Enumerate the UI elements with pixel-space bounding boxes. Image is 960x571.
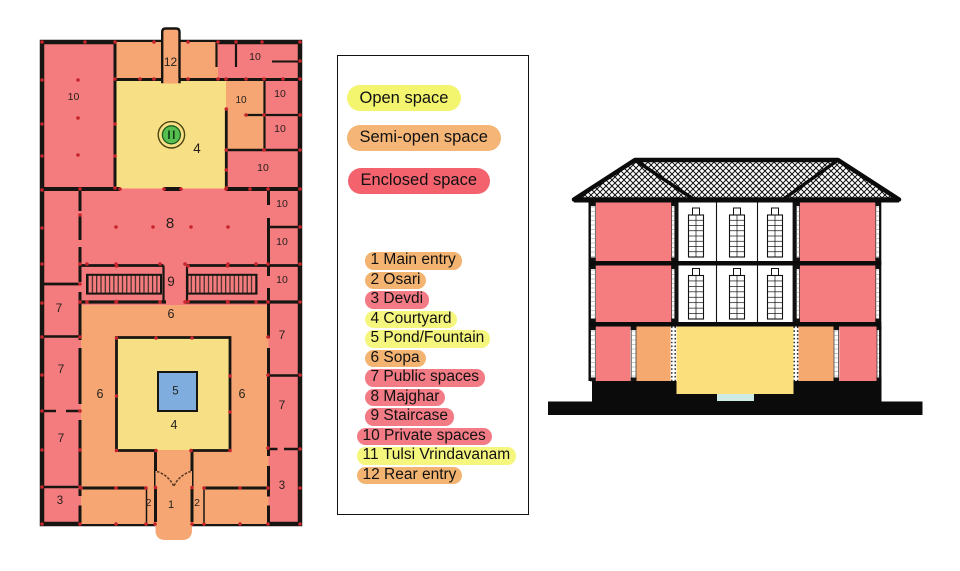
svg-text:5: 5 (172, 386, 178, 398)
svg-text:1: 1 (168, 499, 174, 511)
svg-text:7: 7 (279, 398, 286, 412)
svg-text:3: 3 (279, 480, 285, 492)
svg-text:10: 10 (249, 51, 261, 63)
svg-text:10: 10 (276, 274, 288, 286)
svg-text:10: 10 (274, 123, 286, 135)
svg-text:6: 6 (239, 387, 246, 401)
svg-text:8: 8 (166, 215, 174, 232)
svg-text:4: 4 (193, 141, 201, 156)
svg-text:10: 10 (257, 162, 269, 174)
svg-text:10: 10 (276, 198, 288, 210)
svg-text:10: 10 (235, 95, 247, 106)
svg-text:2: 2 (194, 497, 200, 509)
svg-text:7: 7 (58, 362, 65, 376)
svg-text:7: 7 (56, 301, 63, 315)
svg-text:4: 4 (171, 418, 178, 432)
svg-text:7: 7 (58, 431, 65, 445)
svg-text:2: 2 (146, 497, 152, 509)
svg-text:10: 10 (276, 236, 288, 248)
svg-text:10: 10 (68, 91, 80, 103)
svg-text:7: 7 (279, 328, 286, 342)
svg-text:10: 10 (274, 88, 286, 100)
svg-text:12: 12 (164, 55, 178, 69)
svg-text:3: 3 (57, 495, 63, 507)
svg-text:6: 6 (168, 307, 175, 321)
svg-text:9: 9 (167, 274, 175, 289)
svg-text:6: 6 (97, 387, 104, 401)
